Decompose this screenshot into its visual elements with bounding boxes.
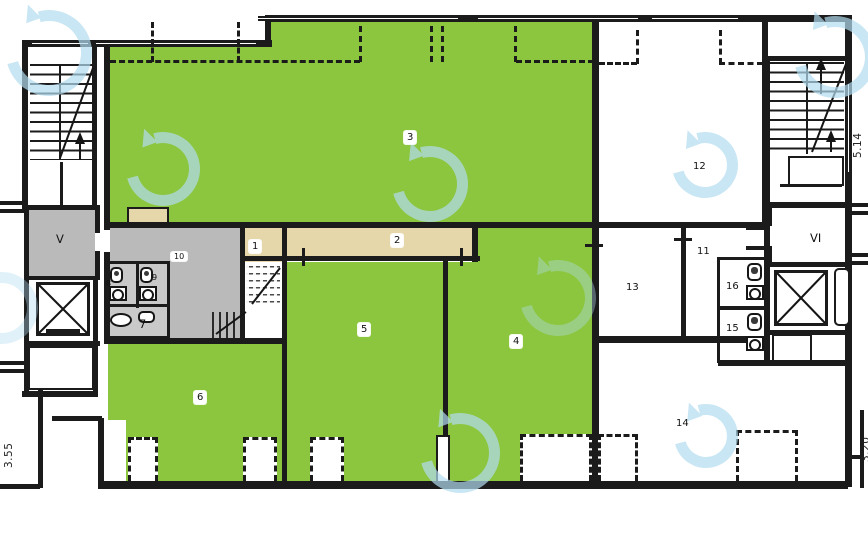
plan-line-overlay: [0, 0, 868, 540]
room-9-label: 9: [152, 273, 157, 282]
stair-diagonal: [60, 68, 93, 158]
room-7-label: 7: [139, 318, 146, 331]
internal-stair-diagonal: [252, 268, 280, 304]
lobby-vi-label: VI: [810, 232, 821, 245]
room-2-label: 2: [391, 234, 403, 247]
room-13-label: 13: [626, 281, 639, 294]
room-11-label: 11: [697, 245, 710, 258]
room-14-label: 14: [676, 417, 689, 430]
internal-stair-diagonal: [216, 312, 246, 334]
room-1-label: 1: [249, 240, 261, 253]
room-6-label: 6: [194, 391, 206, 404]
room-10-label: 10: [171, 252, 187, 261]
lobby-v-label: V: [56, 233, 64, 246]
room-5-label: 5: [358, 323, 370, 336]
dimension-right-upper: 5.14: [852, 133, 864, 158]
room-3-label: 3: [404, 131, 416, 144]
room-8-label: 8: [106, 279, 111, 288]
dimension-right-lower: 3.20: [860, 437, 868, 462]
arrow-head: [826, 130, 836, 142]
room-16-label: 16: [726, 280, 739, 293]
room-12-label: 12: [693, 160, 706, 173]
floor-plan: 3 12 1 2 10 V VI 11 13 16 15 8 9 7 5 4 6…: [0, 0, 868, 540]
dimension-left: 3.55: [3, 443, 15, 468]
room-15-label: 15: [726, 322, 739, 335]
arrow-head: [816, 58, 826, 70]
room-4-label: 4: [510, 335, 522, 348]
arrow-head: [75, 132, 85, 144]
